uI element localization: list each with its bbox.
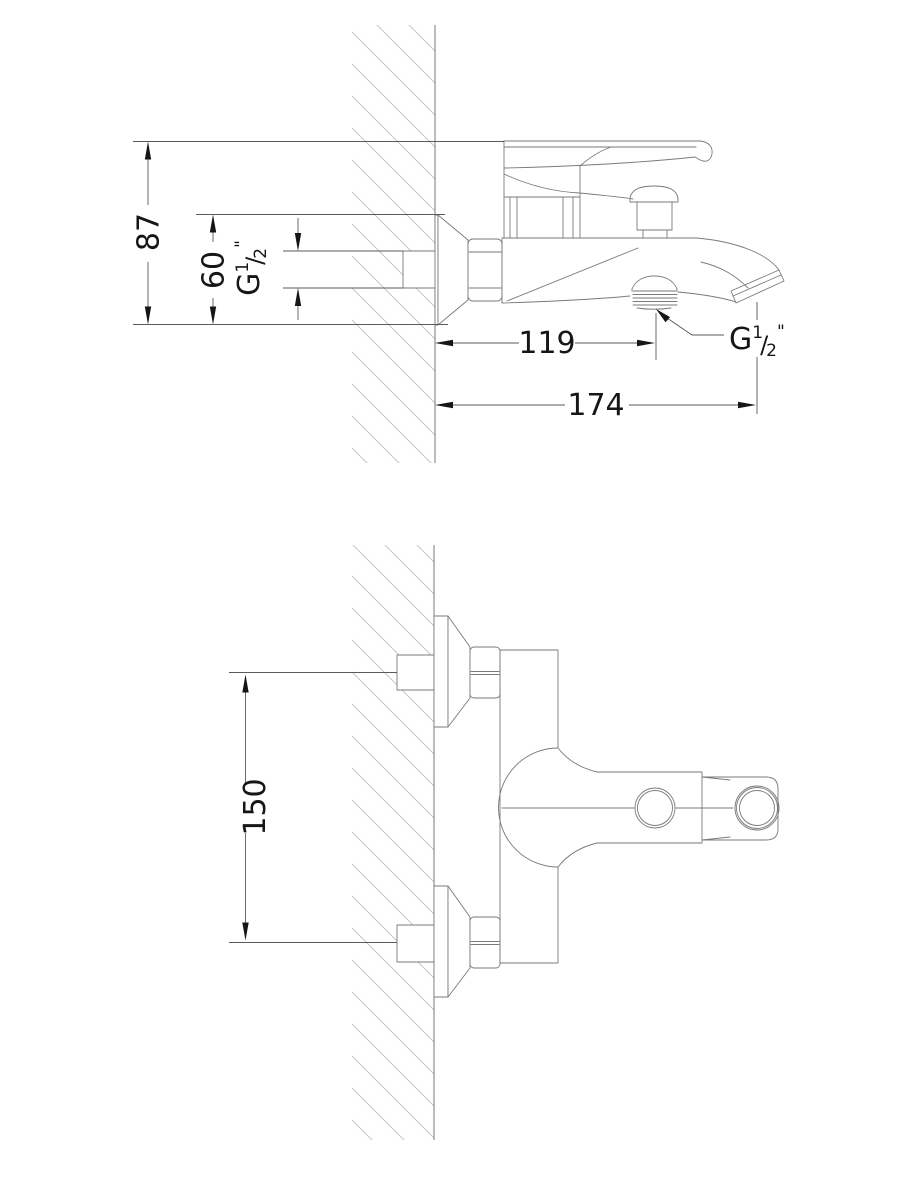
dim-60-label: 60 [197,251,232,289]
escutcheon-side [435,215,468,325]
spout-front-circle [735,786,779,830]
dim-150-label: 150 [238,778,273,835]
supply-stub-bottom [397,925,434,962]
dim-87-label: 87 [132,213,167,251]
arrow-left-icon [435,340,453,346]
escutcheon-top-front [434,616,470,727]
body-dome-arc [499,748,558,867]
drawing-canvas: 87 60 G1/2" 119 [0,0,898,1200]
arrow-right-icon [637,340,655,346]
arrow-down-icon [242,923,248,941]
wall-thread-label: G1/2" [232,240,271,296]
supply-stub [403,251,437,288]
cartridge-housing [504,141,633,238]
mounting-nut-side [468,239,502,301]
spout-side [697,238,784,303]
diverter-front-circle [635,788,675,828]
dimension-174: 174 [435,302,757,423]
mixer-body-side [502,238,736,303]
arrow-up-icon [210,215,216,233]
arrow-right-icon [738,402,756,408]
spout-aerator [731,270,784,303]
shower-outlet-thread [632,276,677,309]
escutcheon-bottom-front [434,886,470,997]
leader-arrow-icon [656,309,670,322]
mounting-nut-bottom-front [470,917,500,968]
outlet-thread-label: G1/2" [729,322,785,361]
arrow-down-icon [295,233,301,251]
wall-hatch-top [352,25,435,463]
dimension-119: 119 [435,313,656,361]
dim-119-label: 119 [518,326,575,361]
arrow-left-icon [435,402,453,408]
arrow-up-icon [145,142,151,160]
arrow-down-icon [145,307,151,325]
mixer-body-front [499,650,778,963]
mounting-nut-top-front [470,647,500,698]
label-outlet-thread: G1/2" [656,309,785,361]
side-view: 87 60 G1/2" 119 [132,25,785,463]
arrow-up-icon [295,288,301,306]
arrow-up-icon [242,675,248,693]
lever-handle [504,141,712,168]
arrow-down-icon [210,307,216,325]
wall-hatch-bottom [352,545,434,1140]
dim-174-label: 174 [567,388,624,423]
front-view: 150 [229,545,779,1140]
faucet-dimension-drawing: 87 60 G1/2" 119 [0,0,898,1200]
diverter-knob-side [630,186,678,238]
supply-stub-top [397,655,434,690]
